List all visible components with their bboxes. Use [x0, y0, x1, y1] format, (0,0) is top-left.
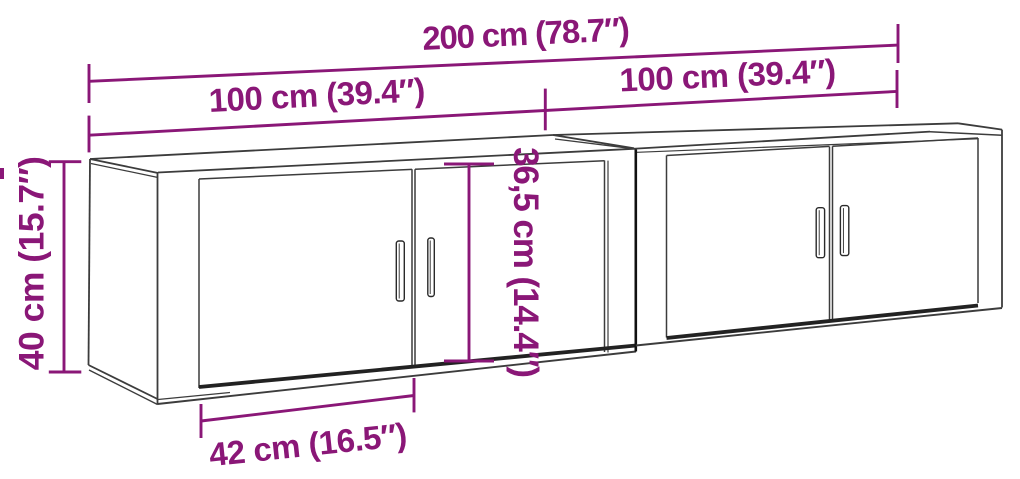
svg-text:40 cm (15.7″): 40 cm (15.7″)	[11, 157, 51, 371]
svg-text:36,5 cm (14.4″): 36,5 cm (14.4″)	[506, 147, 545, 377]
